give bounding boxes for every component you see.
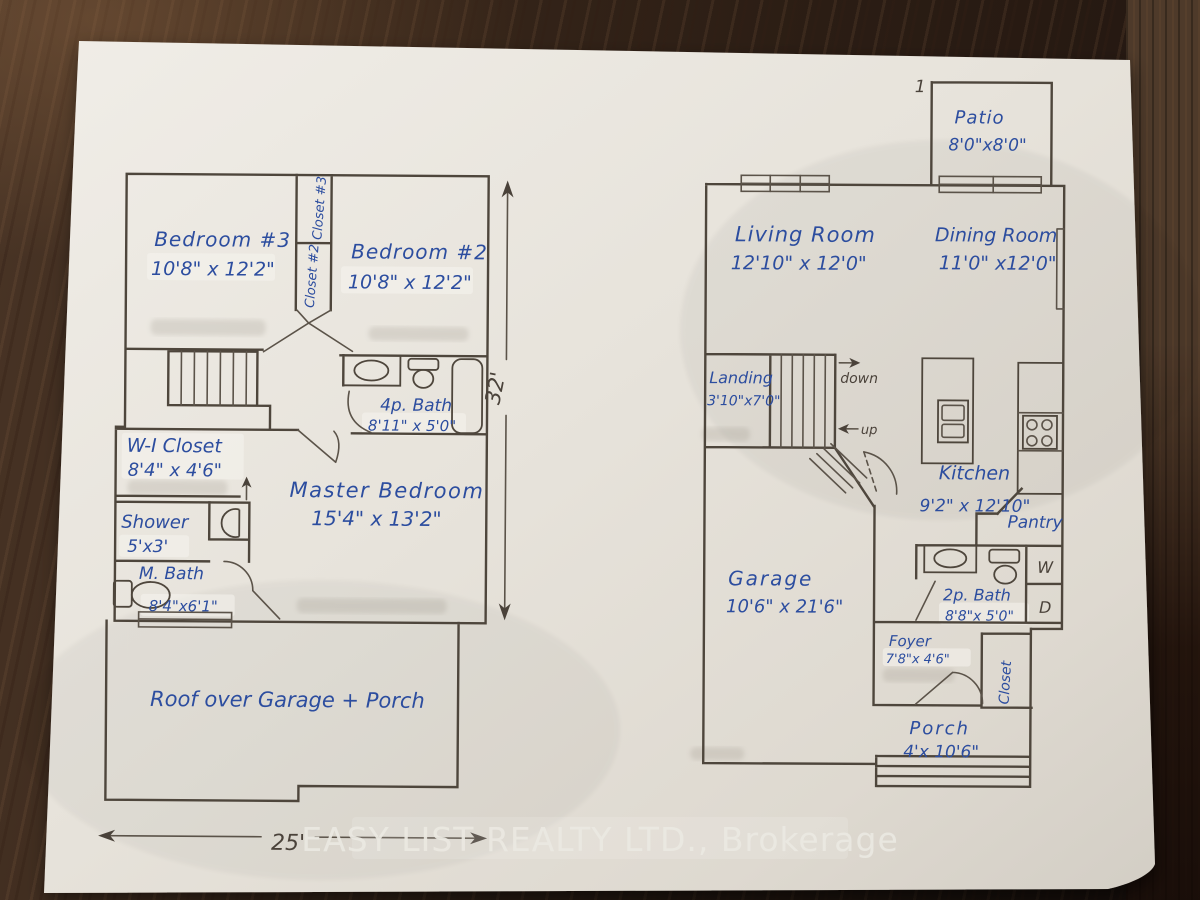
patio-dims: 8'0"x8'0" (948, 135, 1026, 155)
shower-dims: 5'x3' (127, 537, 168, 557)
bedroom3-label: Bedroom #3 (154, 227, 291, 252)
bath2p-dims: 8'8"x 5'0" (945, 608, 1014, 624)
stairs-up-label: up (861, 423, 878, 438)
watermark-text: EASY LIST REALTY LTD., Brokerage (301, 820, 899, 859)
bedroom3-dims: 10'8" x 12'2" (151, 258, 275, 281)
landing-label: Landing (709, 368, 773, 387)
washer-label: W (1037, 558, 1054, 577)
erased-text-smudge (690, 747, 744, 760)
living-room-dims: 12'10" x 12'0" (731, 252, 867, 275)
sheet-number: 1 (915, 77, 926, 97)
erased-text-smudge (151, 319, 266, 336)
dining-room-dims: 11'0" x12'0" (939, 252, 1057, 275)
landing-dims: 3'10"x7'0" (707, 393, 780, 409)
bedroom2-label: Bedroom #2 (351, 239, 488, 264)
mbath-dims: 8'4"x6'1" (149, 597, 218, 615)
erased-text-smudge (127, 480, 227, 496)
kitchen-label: Kitchen (939, 462, 1011, 484)
bath4p-dims: 8'11" x 5'0" (368, 416, 456, 435)
mbath-label: M. Bath (139, 564, 204, 584)
shower-label: Shower (121, 512, 190, 533)
foyer-dims: 7'8"x 4'6" (886, 652, 950, 667)
bedroom2-dims: 10'8" x 12'2" (348, 271, 472, 294)
living-room-label: Living Room (735, 222, 876, 247)
erased-text-smudge (702, 427, 750, 441)
garage-dims: 10'6" x 21'6" (726, 596, 843, 618)
patio-label: Patio (955, 107, 1005, 128)
porch-label: Porch (909, 718, 970, 739)
porch-dims: 4'x 10'6" (903, 742, 979, 762)
master-bedroom-dims: 15'4" x 13'2" (311, 506, 441, 531)
erased-text-smudge (369, 326, 469, 341)
wi-closet-label: W-I Closet (127, 435, 224, 458)
dryer-label: D (1039, 598, 1051, 617)
window-midline (139, 619, 232, 620)
dining-room-label: Dining Room (935, 224, 1057, 247)
pantry-label: Pantry (1007, 513, 1063, 533)
stairs-down-label: down (840, 371, 878, 387)
bath2p-label: 2p. Bath (943, 585, 1011, 604)
floorplan-photo: 25' 32' Bedroom #3 10'8" x 12'2" Closet … (0, 0, 1200, 900)
wi-closet-dims: 8'4" x 4'6" (128, 460, 223, 482)
garage-label: Garage (728, 566, 813, 590)
dim-25-label: 25' (271, 831, 305, 856)
erased-text-smudge (297, 598, 447, 614)
roof-label: Roof over Garage + Porch (150, 687, 425, 713)
bath4p-label: 4p. Bath (380, 396, 452, 417)
closet-label: Closet (997, 660, 1016, 705)
master-bedroom-label: Master Bedroom (289, 478, 484, 503)
foyer-label: Foyer (889, 632, 932, 650)
